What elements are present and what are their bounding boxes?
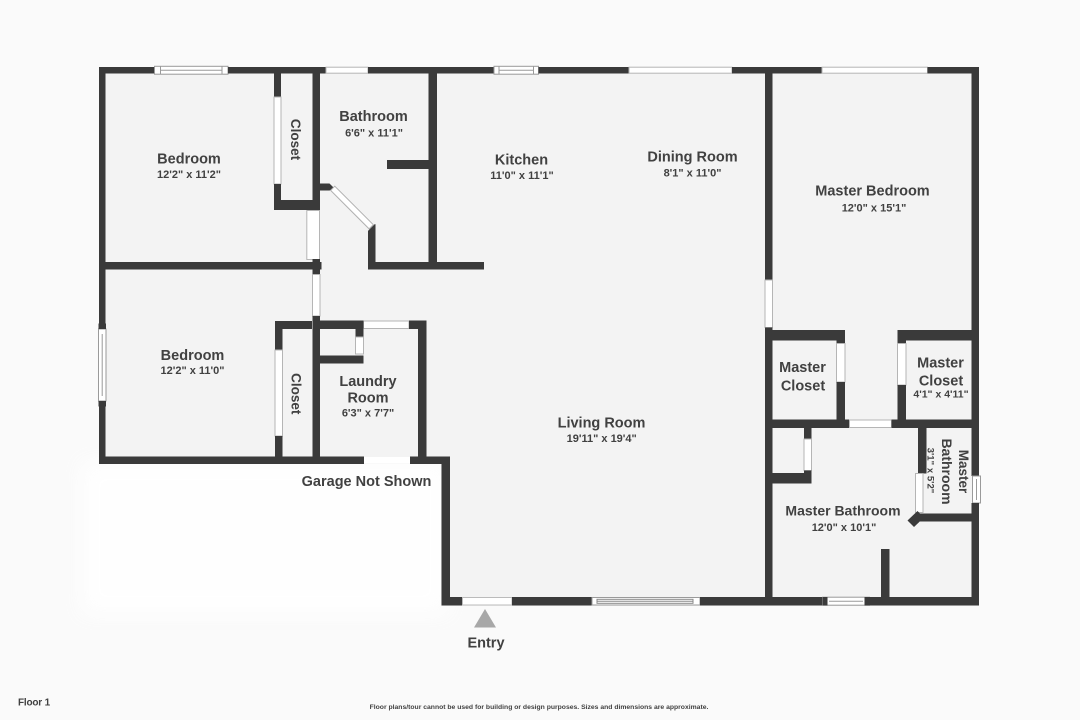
svg-text:Living Room: Living Room xyxy=(558,416,646,432)
svg-text:12'2" x 11'2": 12'2" x 11'2" xyxy=(157,169,221,181)
svg-text:Bathroom: Bathroom xyxy=(939,438,955,504)
svg-text:Entry: Entry xyxy=(467,636,504,652)
svg-text:Floor plans/tour cannot be use: Floor plans/tour cannot be used for buil… xyxy=(370,704,709,711)
svg-text:Master: Master xyxy=(779,360,826,376)
svg-text:Laundry: Laundry xyxy=(339,374,396,390)
svg-text:12'0" x 10'1": 12'0" x 10'1" xyxy=(812,522,877,534)
svg-text:19'11" x 19'4": 19'11" x 19'4" xyxy=(567,433,637,445)
svg-text:8'1" x 11'0": 8'1" x 11'0" xyxy=(664,167,722,179)
svg-text:Bathroom: Bathroom xyxy=(339,109,407,125)
svg-text:12'2" x 11'0": 12'2" x 11'0" xyxy=(161,365,225,377)
svg-text:Bedroom: Bedroom xyxy=(161,348,225,364)
svg-text:Closet: Closet xyxy=(289,373,304,415)
svg-text:Room: Room xyxy=(347,391,388,407)
svg-text:Dining Room: Dining Room xyxy=(647,150,737,166)
svg-text:Kitchen: Kitchen xyxy=(495,153,548,169)
svg-text:Closet: Closet xyxy=(781,379,825,395)
svg-text:Closet: Closet xyxy=(288,119,303,161)
svg-text:Closet: Closet xyxy=(919,373,963,389)
svg-text:4'1" x 4'11": 4'1" x 4'11" xyxy=(913,389,968,401)
svg-text:6'6" x 11'1": 6'6" x 11'1" xyxy=(345,127,403,139)
svg-text:Garage Not Shown: Garage Not Shown xyxy=(302,474,432,490)
svg-text:11'0" x 11'1": 11'0" x 11'1" xyxy=(490,170,553,182)
svg-text:Master: Master xyxy=(956,450,971,494)
svg-text:Master Bathroom: Master Bathroom xyxy=(785,503,900,519)
svg-text:6'3" x 7'7": 6'3" x 7'7" xyxy=(342,408,394,420)
svg-text:Bedroom: Bedroom xyxy=(157,152,221,168)
svg-text:12'0" x 15'1": 12'0" x 15'1" xyxy=(842,202,907,214)
svg-text:Floor 1: Floor 1 xyxy=(18,698,51,709)
svg-text:Master Bedroom: Master Bedroom xyxy=(815,184,929,200)
svg-text:Master: Master xyxy=(917,355,964,371)
